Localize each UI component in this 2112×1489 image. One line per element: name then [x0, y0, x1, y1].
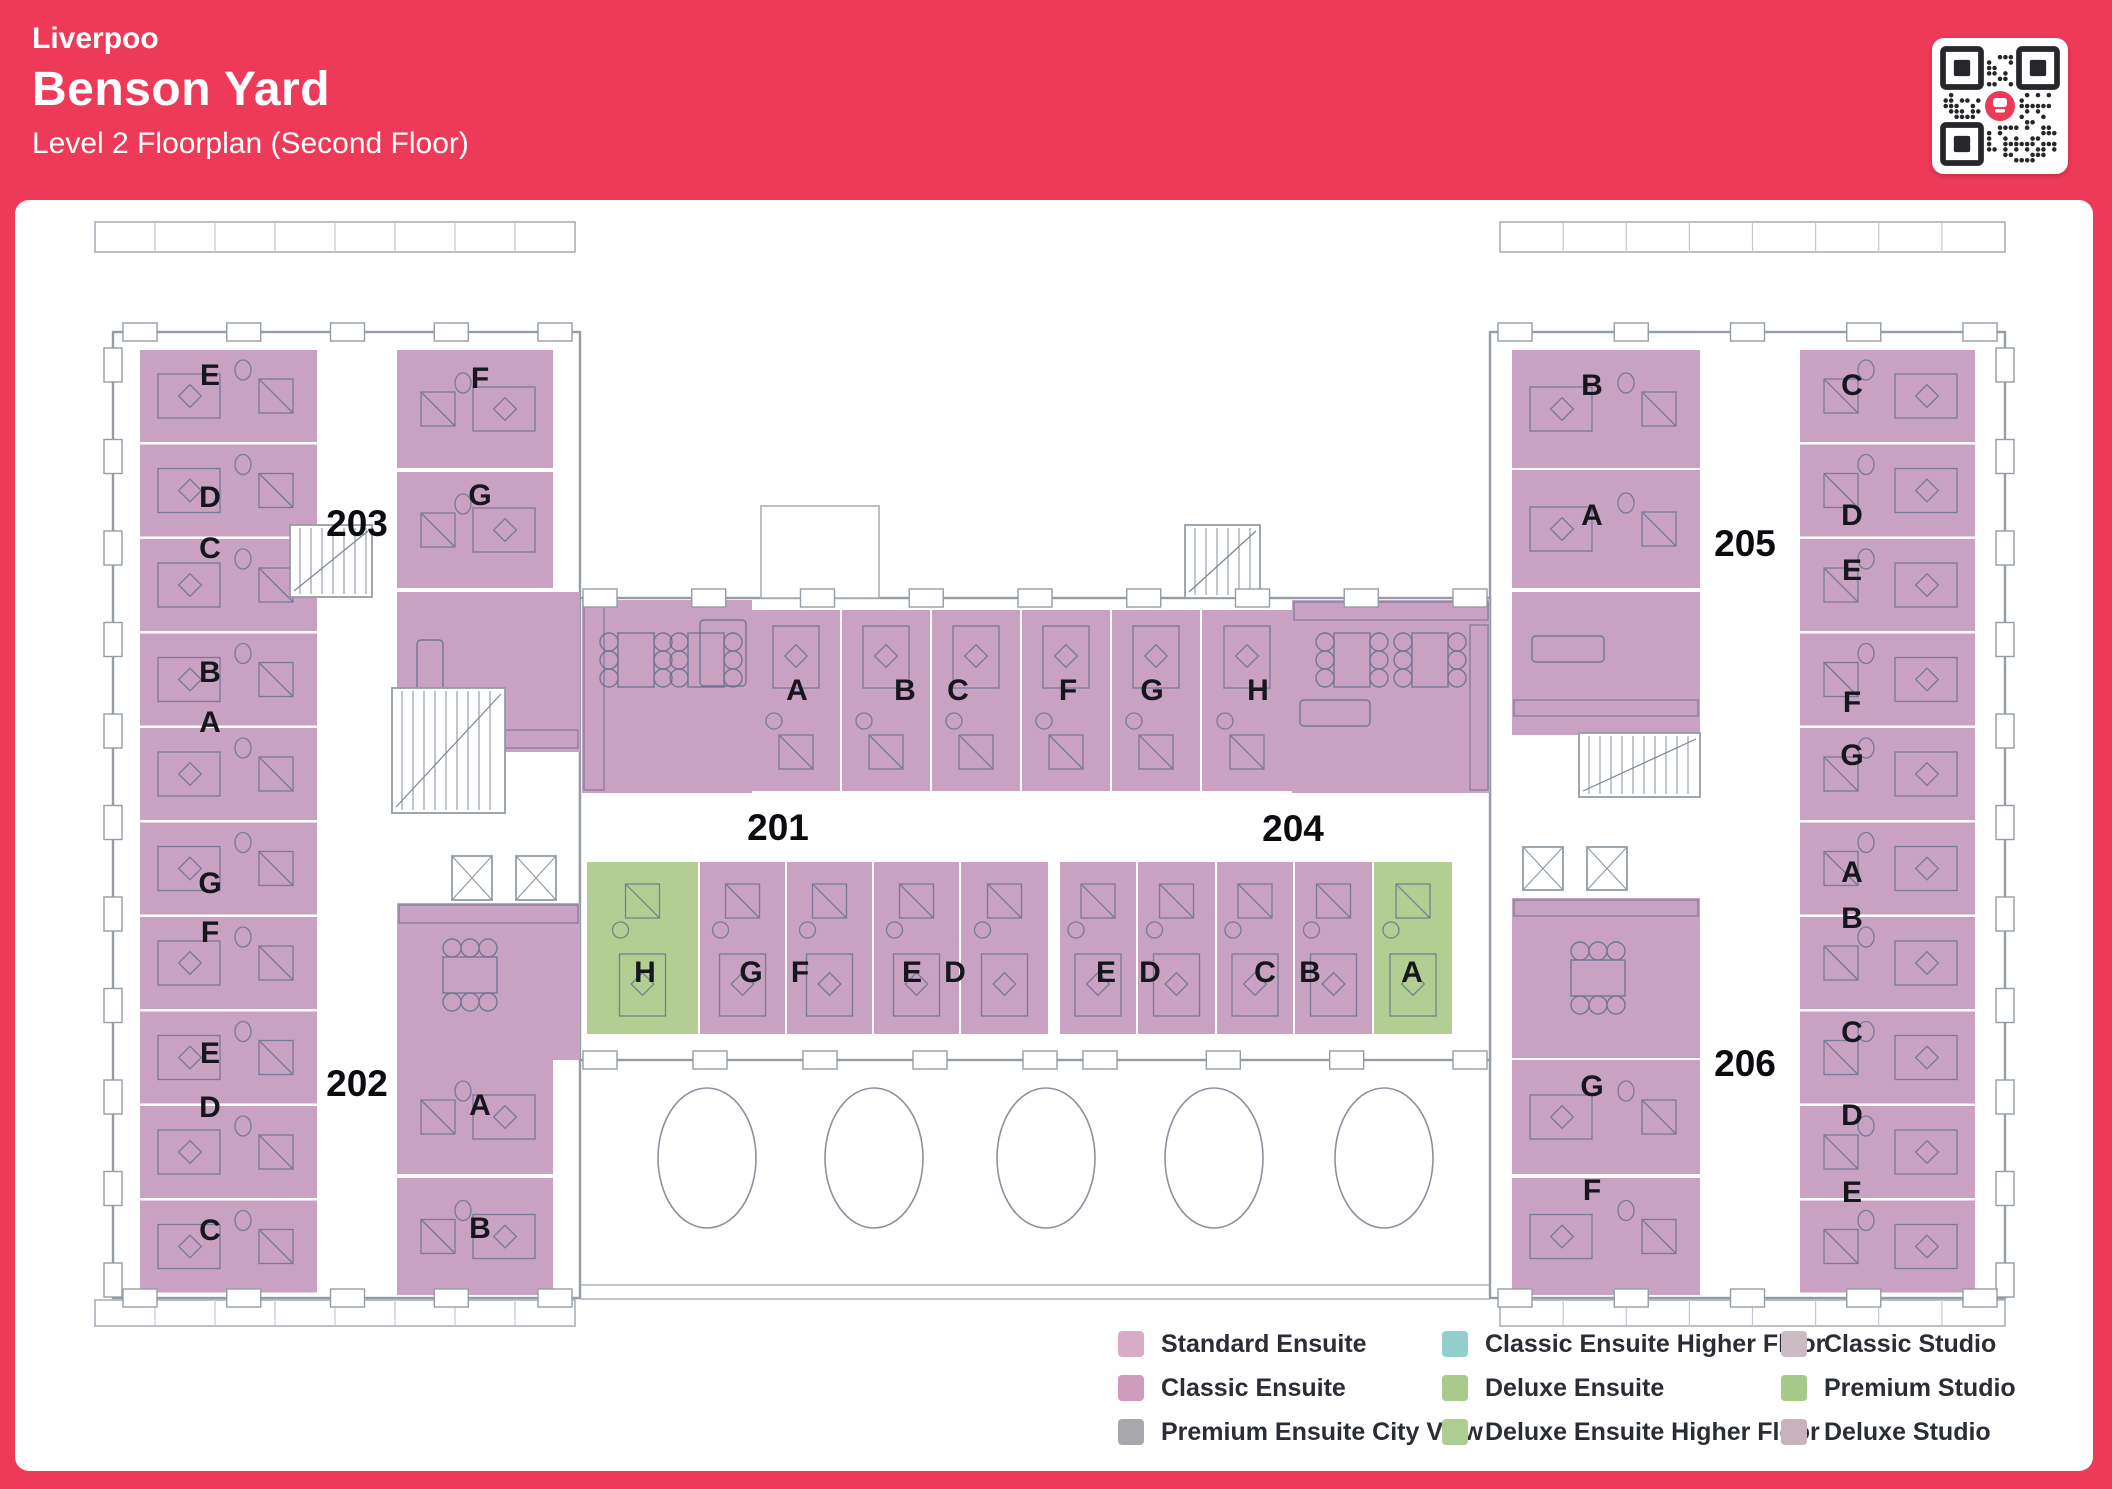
legend-swatch [1442, 1419, 1468, 1445]
legend-item: Premium Ensuite City View [1118, 1418, 1442, 1447]
page-title: Benson Yard [32, 62, 469, 117]
legend-swatch [1781, 1331, 1807, 1357]
legend-item: Deluxe Ensuite Higher Floor [1442, 1418, 1781, 1447]
content-panel [15, 200, 2093, 1471]
legend-item: Deluxe Ensuite [1442, 1374, 1781, 1403]
header: Liverpoo Benson Yard Level 2 Floorplan (… [32, 14, 469, 161]
legend-item: Classic Studio [1781, 1330, 2018, 1359]
legend-swatch [1118, 1375, 1144, 1401]
legend-item: Deluxe Studio [1781, 1418, 2018, 1447]
legend-swatch [1442, 1331, 1468, 1357]
legend-swatch [1118, 1419, 1144, 1445]
legend-label: Premium Ensuite City View [1161, 1418, 1483, 1447]
legend-item: Standard Ensuite [1118, 1330, 1442, 1359]
legend-label: Deluxe Ensuite Higher Floor [1485, 1418, 1820, 1447]
legend-swatch [1781, 1375, 1807, 1401]
legend-label: Classic Ensuite Higher Floor [1485, 1330, 1825, 1359]
legend-swatch [1118, 1331, 1144, 1357]
legend-item: Premium Studio [1781, 1374, 2018, 1403]
legend-swatch [1442, 1375, 1468, 1401]
legend-label: Classic Studio [1824, 1330, 1996, 1359]
legend: Standard EnsuiteClassic EnsuitePremium E… [1118, 1322, 2018, 1454]
legend-label: Deluxe Ensuite [1485, 1374, 1664, 1403]
legend-swatch [1781, 1419, 1807, 1445]
legend-label: Deluxe Studio [1824, 1418, 1991, 1447]
header-location: Liverpoo [32, 22, 469, 56]
legend-label: Classic Ensuite [1161, 1374, 1346, 1403]
qr-pattern [1932, 38, 2068, 174]
floorplan-poster: { "header": { "location": "Liverpoo", "b… [0, 0, 2112, 1489]
legend-label: Premium Studio [1824, 1374, 2016, 1403]
legend-item: Classic Ensuite [1118, 1374, 1442, 1403]
legend-item: Classic Ensuite Higher Floor [1442, 1330, 1781, 1359]
qr-code [1932, 38, 2068, 174]
legend-label: Standard Ensuite [1161, 1330, 1367, 1359]
header-subtitle: Level 2 Floorplan (Second Floor) [32, 127, 469, 161]
